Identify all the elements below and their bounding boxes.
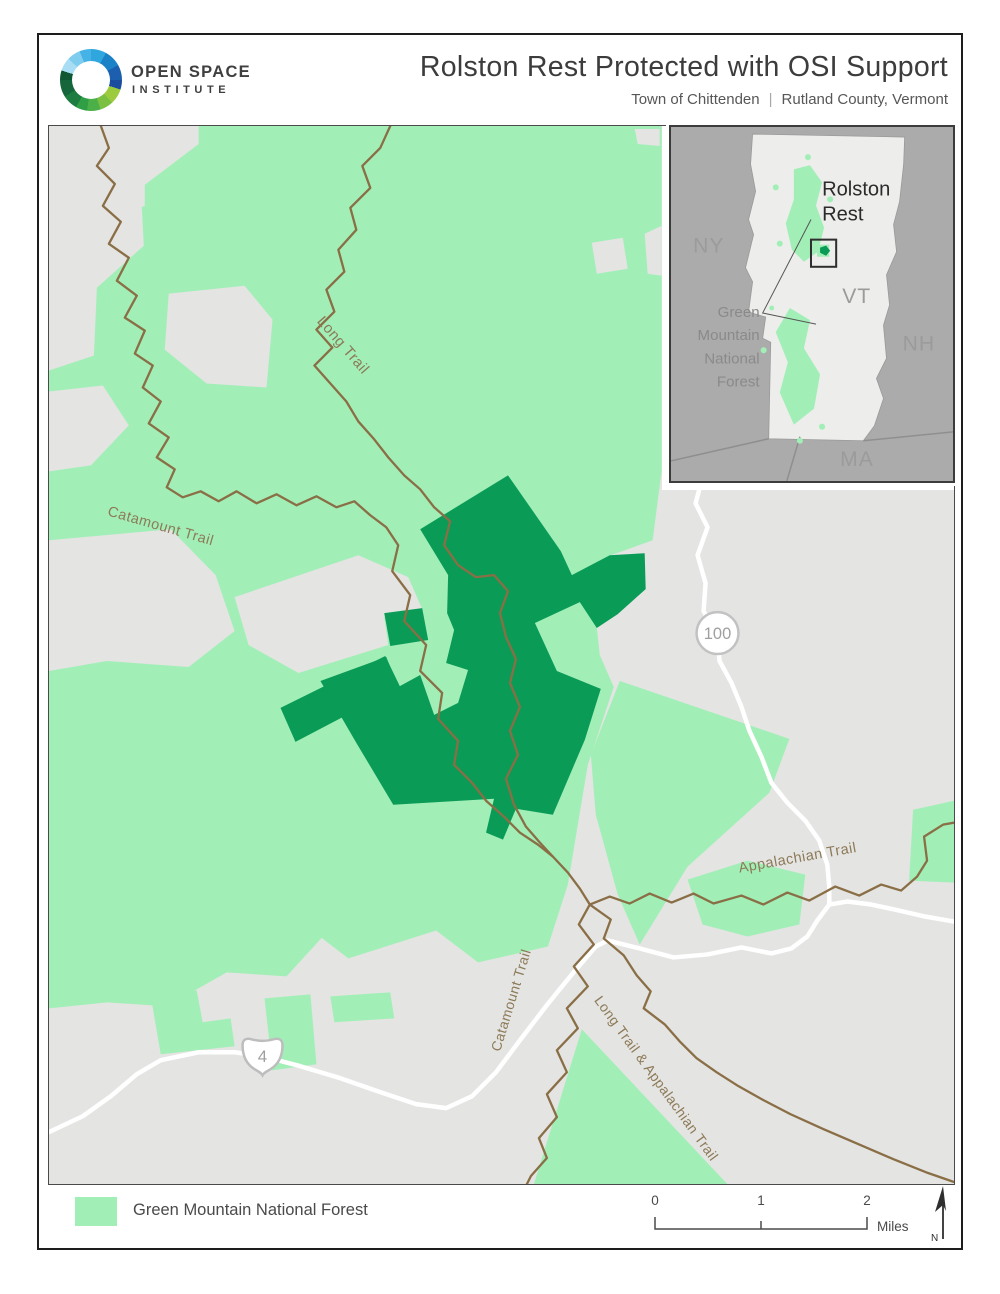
forest-legend-label: Green Mountain National Forest	[133, 1201, 368, 1220]
svg-text:Green: Green	[718, 304, 760, 321]
inset-rolston-label-line2: Rest	[822, 204, 864, 226]
state-label-ny: NY	[693, 235, 724, 258]
logo-wordmark-line2: INSTITUTE	[132, 84, 230, 96]
inset-rolston-label-line1: Rolston	[822, 178, 890, 200]
scale-tick-labels: 0 1 2	[651, 1193, 871, 1208]
scale-bar: 0 1 2 Miles	[639, 1189, 969, 1243]
inset-canvas: Rolston Rest Green Mountain National For…	[671, 127, 953, 481]
svg-text:Forest: Forest	[717, 373, 761, 390]
north-arrow-head-icon	[935, 1186, 946, 1212]
main-map: Long Trail Catamount Trail Appalachian T…	[48, 125, 955, 1185]
osi-logo-hole	[72, 61, 110, 99]
svg-text:1: 1	[757, 1193, 765, 1208]
svg-text:Mountain: Mountain	[698, 327, 760, 344]
route-100-shield-label: 100	[704, 625, 731, 643]
legend-strip: Green Mountain National Forest 0 1 2 Mil…	[39, 1185, 961, 1248]
scale-bar-line	[655, 1217, 867, 1229]
page-subtitle: Town of Chittenden|Rutland County, Vermo…	[631, 91, 948, 108]
locator-inset-map: Rolston Rest Green Mountain National For…	[669, 125, 955, 483]
subtitle-separator: |	[760, 91, 782, 108]
state-label-nh: NH	[903, 332, 936, 355]
north-arrow-label: N	[931, 1233, 938, 1244]
state-label-vt: VT	[842, 285, 871, 308]
fact-sheet-page: OPEN SPACE INSTITUTE Rolston Rest Protec…	[37, 33, 963, 1250]
svg-text:National: National	[704, 350, 759, 367]
subtitle-town: Town of Chittenden	[631, 91, 759, 108]
page-title: Rolston Rest Protected with OSI Support	[420, 51, 948, 84]
state-label-ma: MA	[840, 448, 874, 471]
svg-text:0: 0	[651, 1193, 659, 1208]
logo-wordmark-line1: OPEN SPACE	[131, 63, 251, 82]
north-arrow: N	[925, 1185, 955, 1245]
svg-text:2: 2	[863, 1193, 871, 1208]
osi-logo-icon	[60, 49, 122, 111]
subtitle-county: Rutland County, Vermont	[782, 91, 948, 108]
header: OPEN SPACE INSTITUTE Rolston Rest Protec…	[39, 35, 961, 125]
route-4-shield-label: 4	[258, 1047, 267, 1066]
scale-unit-label: Miles	[877, 1219, 909, 1234]
forest-legend-swatch	[75, 1197, 117, 1226]
